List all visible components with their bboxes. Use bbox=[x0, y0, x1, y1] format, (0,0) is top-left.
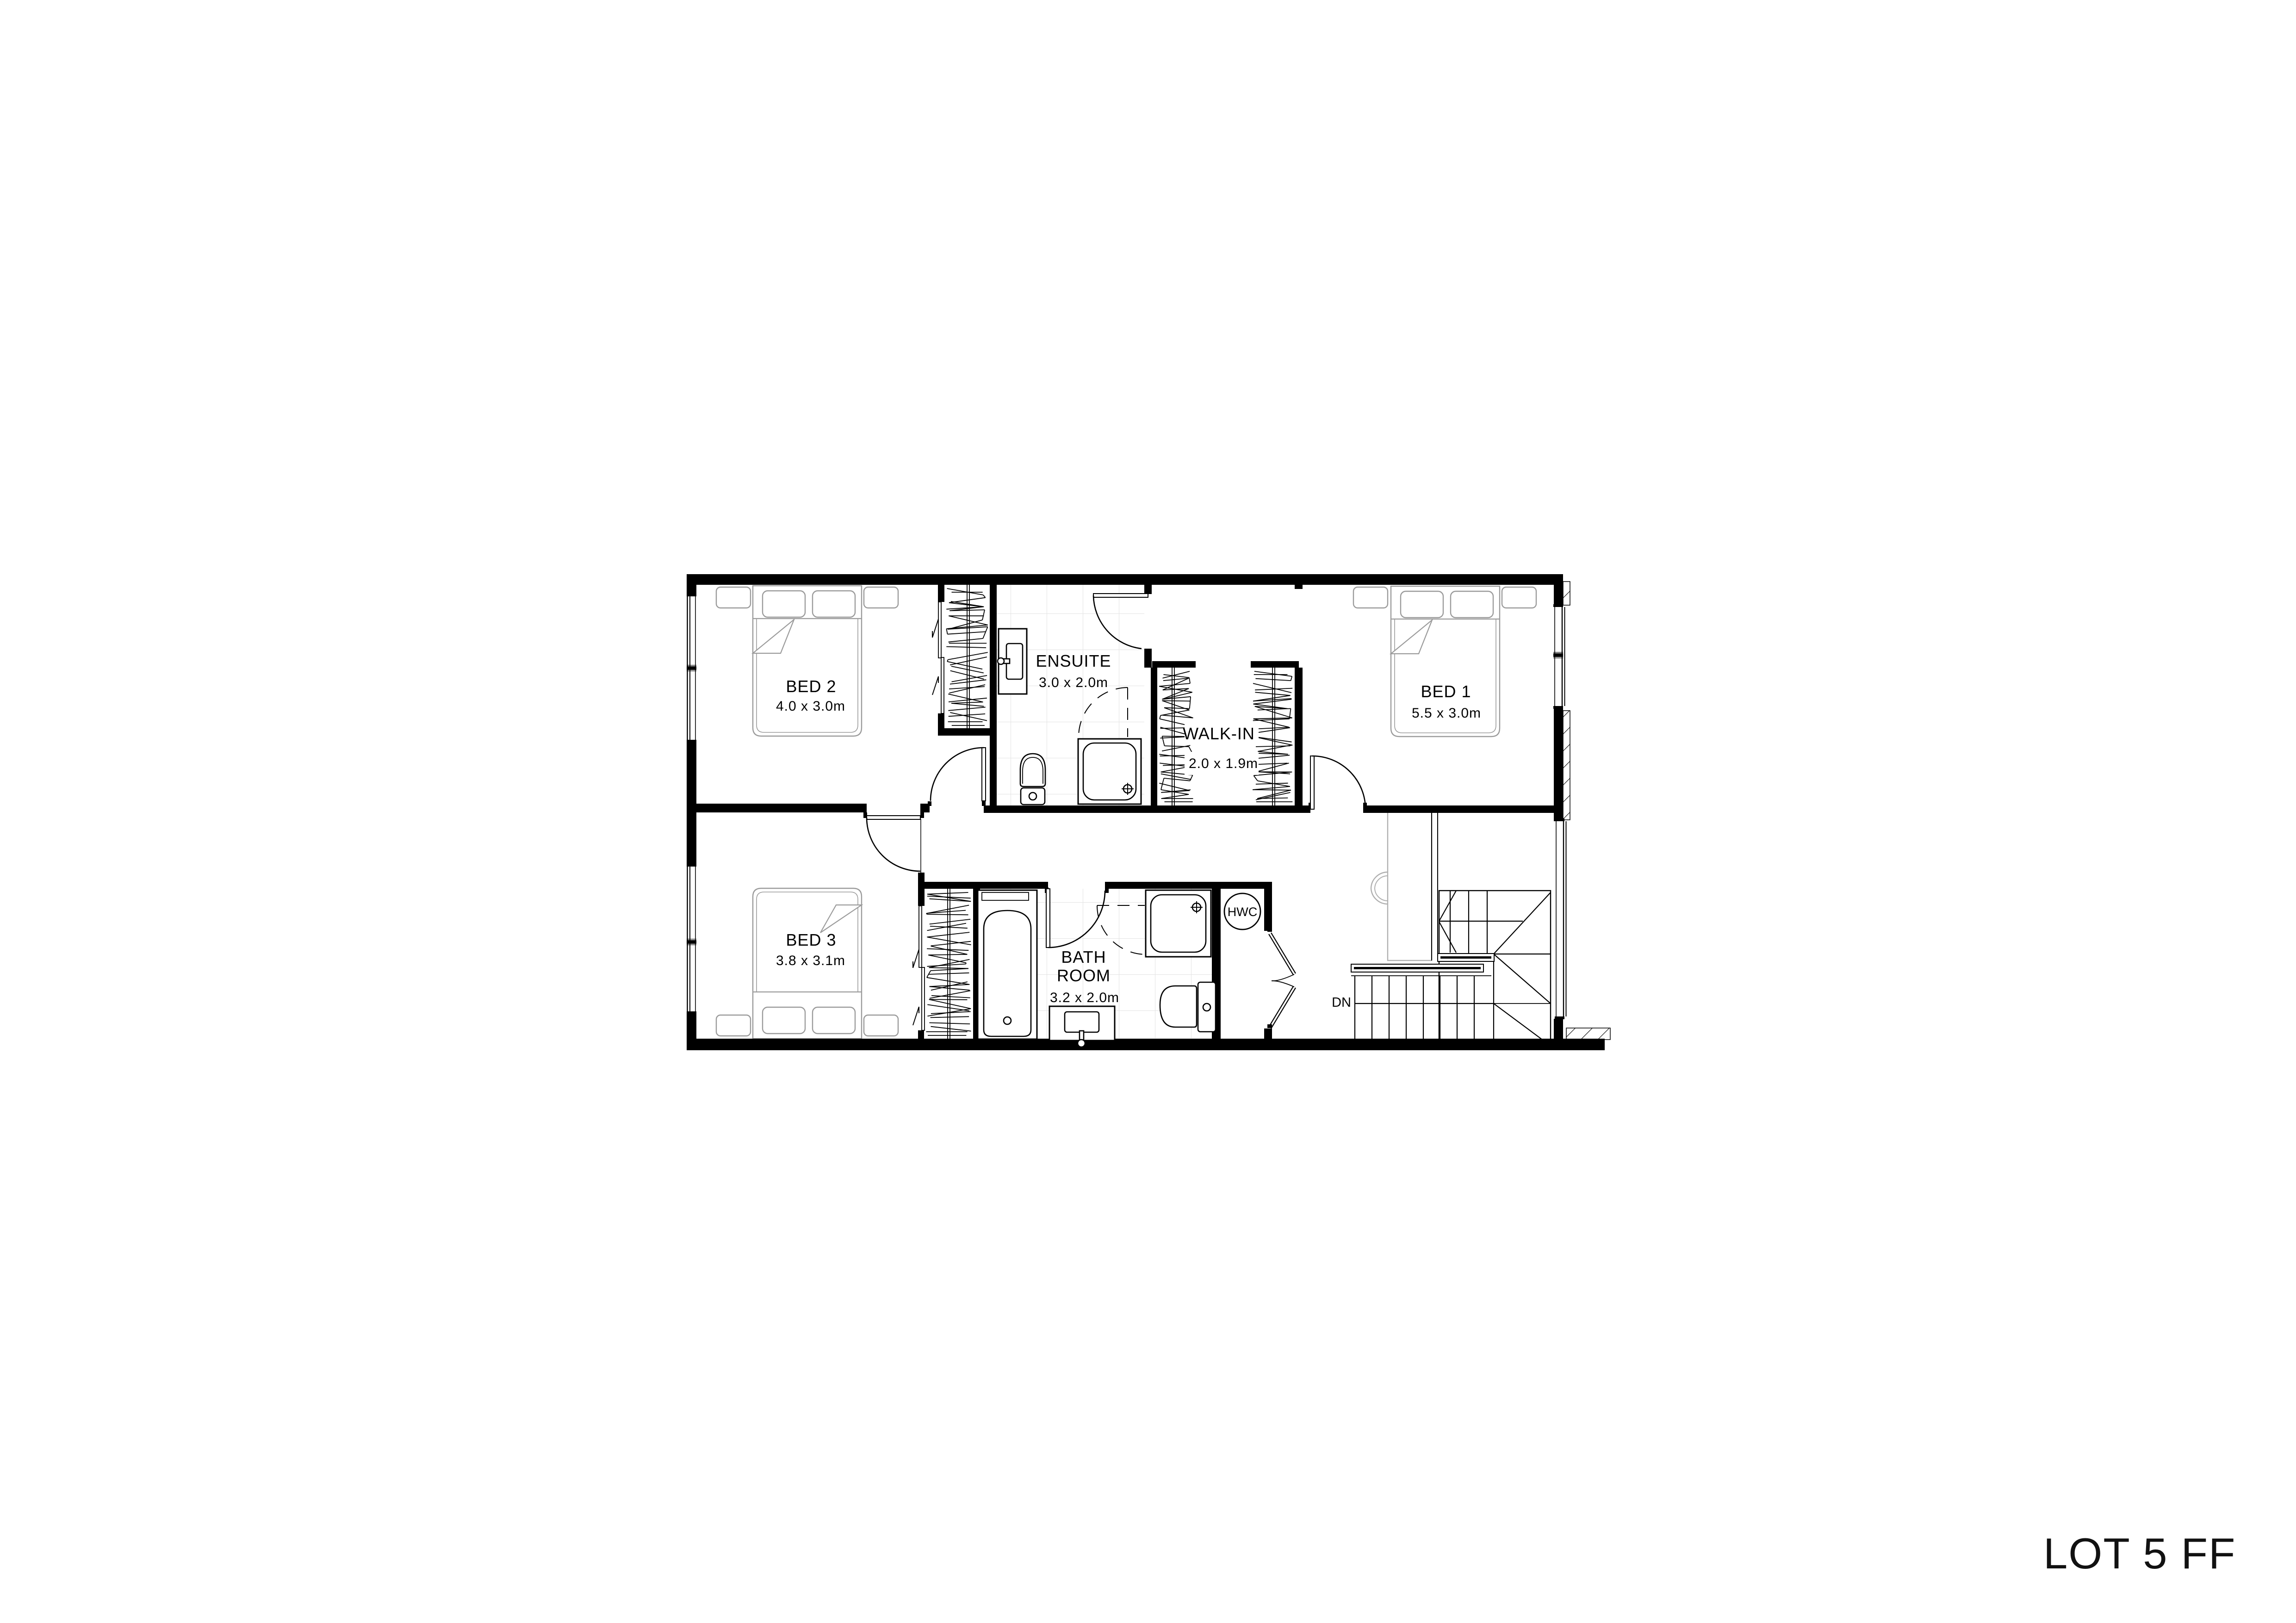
svg-text:ENSUITE: ENSUITE bbox=[1036, 651, 1111, 670]
svg-text:BED 1: BED 1 bbox=[1421, 682, 1471, 701]
svg-text:3.2 x 2.0m: 3.2 x 2.0m bbox=[1050, 990, 1119, 1005]
svg-text:3.8 x 3.1m: 3.8 x 3.1m bbox=[776, 953, 845, 968]
svg-text:WALK-IN: WALK-IN bbox=[1183, 724, 1255, 743]
svg-text:BED 2: BED 2 bbox=[786, 677, 836, 696]
svg-text:BED 3: BED 3 bbox=[786, 930, 836, 949]
svg-text:HWC: HWC bbox=[1228, 905, 1257, 919]
svg-text:LOT 5 FF: LOT 5 FF bbox=[2043, 1529, 2236, 1578]
svg-text:4.0 x 3.0m: 4.0 x 3.0m bbox=[776, 699, 845, 714]
svg-text:2.0 x 1.9m: 2.0 x 1.9m bbox=[1189, 756, 1258, 771]
svg-text:BATH: BATH bbox=[1061, 948, 1106, 966]
svg-text:DN: DN bbox=[1332, 995, 1351, 1010]
svg-text:ROOM: ROOM bbox=[1057, 966, 1111, 985]
svg-text:3.0 x 2.0m: 3.0 x 2.0m bbox=[1039, 675, 1108, 690]
svg-text:5.5 x 3.0m: 5.5 x 3.0m bbox=[1412, 706, 1481, 721]
